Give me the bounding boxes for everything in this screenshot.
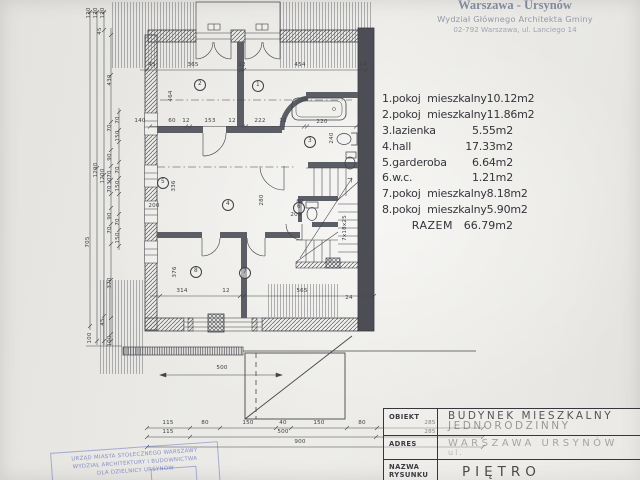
dimension-label: 70 [108, 124, 114, 132]
room-schedule: 1.pokoj mieszkalny10.12m22.pokoj mieszka… [382, 92, 513, 235]
adres-value: WARSZAWA URSYNÓW ul. [438, 436, 640, 459]
title-block-row-adres: ADRES WARSZAWA URSYNÓW ul. [384, 436, 640, 460]
office-header: Warszawa - Ursynów Wydział Głównego Arch… [392, 0, 638, 34]
room-number: 4 [222, 199, 234, 211]
dimension-label: 500 [277, 430, 288, 436]
scanned-floor-plan-page: 2135468745365124542446412012012045430705… [0, 0, 640, 480]
room-total-area: 66.79m2 [459, 219, 513, 235]
room-list-item: 8.pokoj mieszkalny5.90m2 [382, 203, 513, 219]
curved-bathroom-wall [282, 98, 308, 130]
drawing-name: PIĘTRO [448, 464, 640, 480]
obiekt-value-line2: JEDNORODZINNY [448, 420, 640, 432]
dimension-label: 1200 [101, 168, 107, 183]
dimension-label: 205 [290, 213, 301, 219]
room-area: 10.12m2 [487, 92, 535, 108]
dimension-label: 365 [187, 63, 198, 69]
room-list-item: 4.hall17.33m2 [382, 140, 513, 156]
dimension-label: 120 [87, 7, 93, 18]
dimension-label: 70 [108, 185, 114, 193]
room-number: 2 [194, 79, 206, 91]
dimension-label: 120 [94, 7, 100, 18]
dimension-label: 120 [101, 7, 107, 18]
dimension-label: 70 [108, 226, 114, 234]
obiekt-value: BUDYNEK MIESZKALNY JEDNORODZINNY [438, 409, 640, 435]
bathtub-icon [292, 98, 346, 120]
room-number: 3 [304, 136, 316, 148]
dimension-label: 200 [148, 204, 159, 210]
nazwa-value: PIĘTRO [438, 460, 640, 480]
dimension-label: 280 [260, 194, 266, 205]
dimension-label: 150 [242, 421, 253, 427]
dimension-label: 150 [313, 421, 324, 427]
dimension-label: 115 [162, 430, 173, 436]
dimension-label: 705 [86, 236, 92, 247]
section-rectangle [123, 336, 476, 419]
office-header-line1: Warszawa - Ursynów [392, 0, 638, 13]
room-area: 6.64m2 [459, 156, 513, 172]
room-name: 3.lazienka [382, 124, 459, 140]
sink-icon [337, 133, 357, 145]
room-list-item: 6.w.c.1.21m2 [382, 171, 513, 187]
dimension-label: 100 [88, 332, 94, 343]
room-area: 17.33m2 [459, 140, 513, 156]
room-list-item: 7.pokoj mieszkalny8.18m2 [382, 187, 513, 203]
room-name: 8.pokoj mieszkalny [382, 203, 487, 219]
dimension-label: 12 [182, 119, 190, 125]
dimension-label: 900 [294, 440, 305, 446]
room-area: 5.55m2 [459, 124, 513, 140]
dimension-label: 45 [101, 318, 107, 326]
dimension-label: 336 [172, 180, 178, 191]
nazwa-label: NAZWA RYSUNKU [384, 460, 438, 480]
dimension-label: 80 [296, 200, 304, 206]
dimension-label: 240 [330, 132, 336, 143]
dimension-label: 454 [294, 63, 305, 69]
dimension-label: 153 [204, 119, 215, 125]
room-number: 8 [190, 266, 202, 278]
dimension-label: 115 [162, 421, 173, 427]
room-list-item: 2.pokoj mieszkalny11.86m2 [382, 108, 513, 124]
dimension-label: 222 [254, 119, 265, 125]
dimension-label: 60 [168, 119, 176, 125]
room-name: 7.pokoj mieszkalny [382, 187, 487, 203]
room-area: 8.18m2 [487, 187, 528, 203]
adres-label: ADRES [384, 436, 438, 459]
dimension-label: 80 [201, 421, 209, 427]
dimension-label: 430 [108, 74, 114, 85]
dimension-label: 500 [216, 366, 227, 372]
room-number: 1 [252, 80, 264, 92]
dimension-label: 12 [228, 119, 236, 125]
dimension-label: 24 [359, 63, 367, 69]
obiekt-label: OBIEKT [384, 409, 438, 435]
title-block-row-obiekt: OBIEKT BUDYNEK MIESZKALNY JEDNORODZINNY [384, 409, 640, 436]
dimension-label: 12 [238, 63, 246, 69]
party-wall [358, 28, 374, 331]
dimension-label: 1290 [94, 162, 100, 177]
room-number: 7 [239, 267, 251, 279]
room-area: 5.90m2 [487, 203, 528, 219]
dimension-label: 150 [116, 130, 122, 141]
bottom-wall-window [184, 314, 262, 332]
dimension-label: 370 [108, 277, 114, 288]
dimension-label: 80 [358, 421, 366, 427]
dimension-label: 464 [169, 90, 175, 101]
room-name: 1.pokoj mieszkalny [382, 92, 487, 108]
office-header-line2: Wydział Głównego Architekta Gminy [392, 14, 638, 24]
dimension-label: 24 [345, 296, 353, 302]
dimension-label: 376 [173, 266, 179, 277]
roof-height-lines [157, 100, 352, 167]
dimension-label: 140 [134, 119, 145, 125]
dimension-label: 150 [116, 180, 122, 191]
dimension-label: 7x18x25 [343, 215, 349, 241]
dimension-label: 70 [116, 116, 122, 124]
dimension-label: 100 [108, 335, 114, 346]
dimension-label: 45 [98, 27, 104, 35]
dimension-label: 45 [148, 63, 156, 69]
title-block: OBIEKT BUDYNEK MIESZKALNY JEDNORODZINNY … [383, 408, 640, 480]
title-block-row-nazwa: NAZWA RYSUNKU PIĘTRO [384, 460, 640, 480]
room-area: 11.86m2 [487, 108, 535, 124]
stamp-signature-box [150, 466, 198, 480]
dimension-label: 30 [108, 177, 114, 185]
room-name: 5.garderoba [382, 156, 459, 172]
dimension-label: 565 [296, 289, 307, 295]
room-total-row: RAZEM 66.79m2 [382, 219, 513, 235]
dimension-label: 90 [108, 153, 114, 161]
dimension-label: 12 [279, 119, 287, 125]
room-number: 5 [157, 177, 169, 189]
dimension-label: 150 [116, 232, 122, 243]
dimension-label: 314 [176, 289, 187, 295]
room-list-item: 3.lazienka5.55m2 [382, 124, 513, 140]
dimension-label: 12 [222, 289, 230, 295]
adres-value-line2: ul. [448, 448, 640, 457]
room-list-item: 1.pokoj mieszkalny10.12m2 [382, 92, 513, 108]
room-total-label: RAZEM [382, 219, 459, 235]
dimension-label: 70 [116, 218, 122, 226]
room-area: 1.21m2 [459, 171, 513, 187]
room-name: 4.hall [382, 140, 459, 156]
room-name: 2.pokoj mieszkalny [382, 108, 487, 124]
room-rows: 1.pokoj mieszkalny10.12m22.pokoj mieszka… [382, 92, 513, 219]
dimension-label: 220 [316, 120, 327, 126]
room-name: 6.w.c. [382, 171, 459, 187]
dimension-label: 90 [108, 212, 114, 220]
room-list-item: 5.garderoba6.64m2 [382, 156, 513, 172]
office-header-line3: 02-792 Warszawa, ul. Lanciego 14 [392, 25, 638, 34]
dimension-label: 40 [279, 421, 287, 427]
dimension-label: 70 [116, 166, 122, 174]
wc-toilet-icon [306, 202, 318, 221]
